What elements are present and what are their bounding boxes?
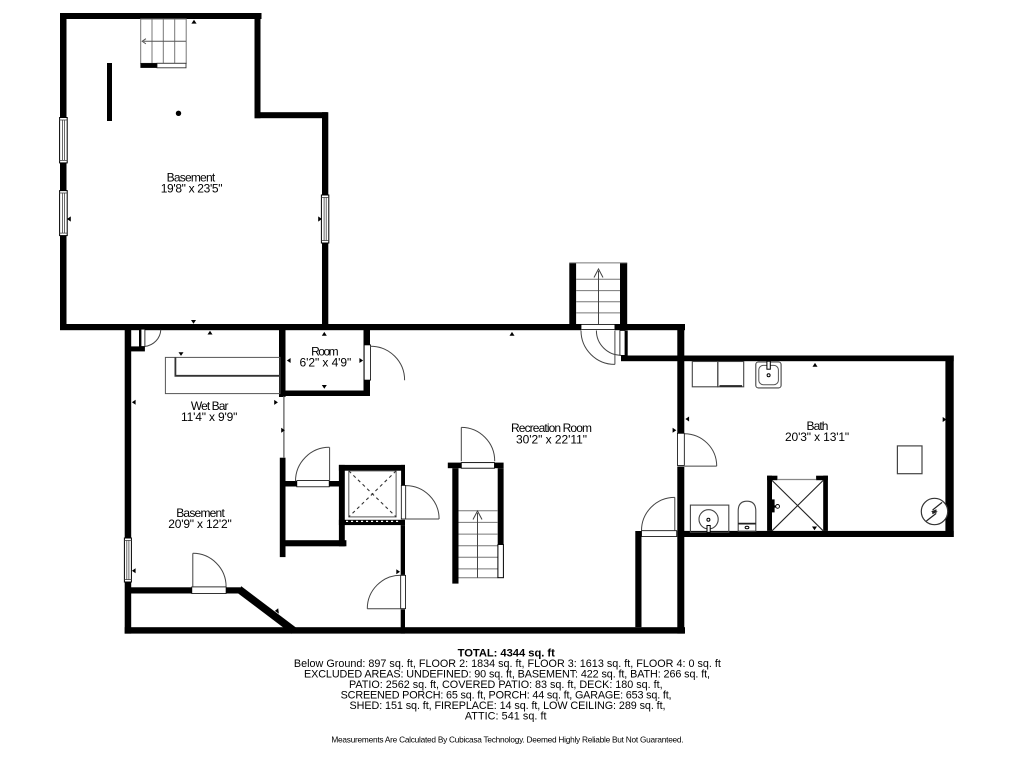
svg-text:6'2" x 4'9": 6'2" x 4'9" xyxy=(300,355,352,369)
svg-text:20'3" x 13'1": 20'3" x 13'1" xyxy=(785,430,849,444)
svg-text:30'2" x 22'11": 30'2" x 22'11" xyxy=(516,432,587,446)
svg-text:ATTIC: 541 sq. ft: ATTIC: 541 sq. ft xyxy=(465,711,547,723)
svg-text:Measurements Are Calculated By: Measurements Are Calculated By Cubicasa … xyxy=(331,734,683,744)
svg-text:19'8" x 23'5": 19'8" x 23'5" xyxy=(161,181,223,195)
svg-text:20'9" x 12'2": 20'9" x 12'2" xyxy=(168,517,232,531)
svg-text:11'4" x 9'9": 11'4" x 9'9" xyxy=(181,410,238,424)
